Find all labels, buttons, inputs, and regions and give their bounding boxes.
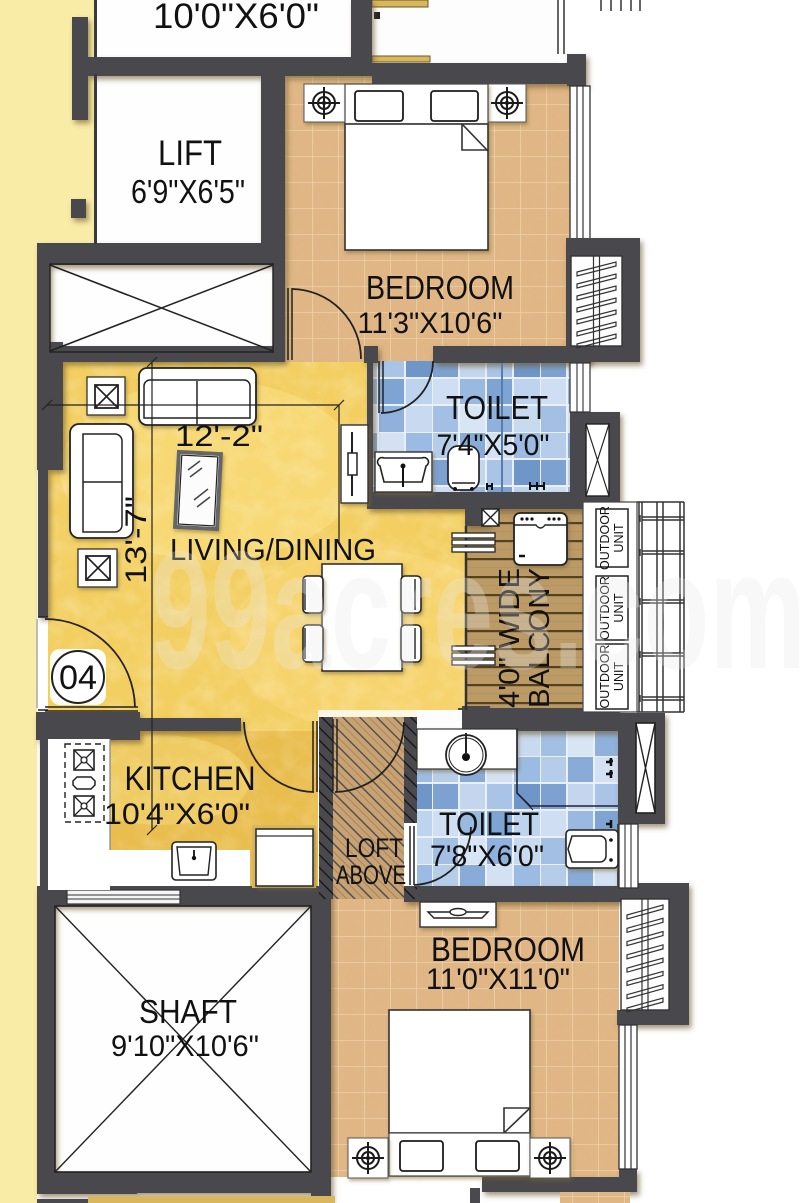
- svg-text:11'0"X11'0": 11'0"X11'0": [426, 963, 570, 996]
- svg-text:04: 04: [59, 659, 97, 697]
- svg-text:12'-2": 12'-2": [175, 420, 263, 453]
- svg-text:LOFT: LOFT: [345, 833, 403, 863]
- svg-text:TOILET: TOILET: [439, 806, 539, 842]
- svg-text:9'10"X10'6": 9'10"X10'6": [111, 1030, 259, 1063]
- svg-text:SHAFT: SHAFT: [139, 993, 237, 1030]
- svg-text:11'3"X10'6": 11'3"X10'6": [358, 307, 503, 340]
- svg-text:10'0"X6'0": 10'0"X6'0": [153, 0, 319, 36]
- svg-text:13'-7": 13'-7": [120, 496, 153, 584]
- svg-text:LIFT: LIFT: [158, 134, 222, 173]
- svg-text:99acres.com: 99acres.com: [151, 516, 803, 704]
- svg-text:ABOVE: ABOVE: [336, 860, 406, 890]
- svg-text:BEDROOM: BEDROOM: [366, 269, 514, 306]
- svg-text:TOILET: TOILET: [446, 389, 548, 426]
- svg-text:7'8"X6'0": 7'8"X6'0": [430, 840, 544, 873]
- svg-text:6'9"X6'5": 6'9"X6'5": [131, 173, 245, 210]
- svg-text:10'4"X6'0": 10'4"X6'0": [104, 798, 250, 831]
- svg-text:7'4"X5'0": 7'4"X5'0": [437, 429, 550, 462]
- svg-text:KITCHEN: KITCHEN: [125, 760, 256, 798]
